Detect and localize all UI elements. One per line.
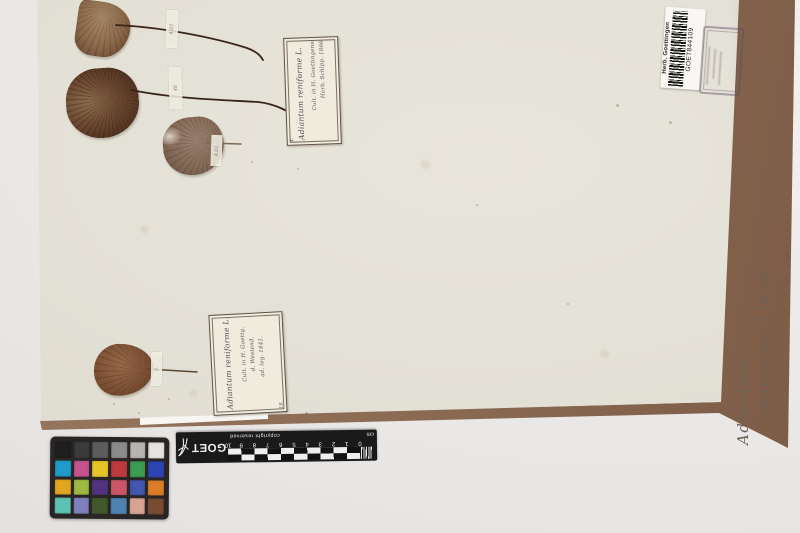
color-patch [55,479,71,495]
scale-ruler: 012345678910 cm copyright reserved GOET [176,430,377,464]
color-patch [73,498,89,514]
stain-speck [168,398,170,400]
label-date: ad. leg. 1841. [258,335,266,376]
ruler-tick-label: 0 [358,438,361,447]
color-patch [148,480,164,496]
color-patch [55,498,71,514]
tape-mark: 3. [153,367,159,372]
ruler-tick-label: 4 [305,439,308,448]
foxing-spot [420,160,430,169]
ruler-tick-label: 3 [319,438,322,447]
specimen-label-bottom: Adiantum reniforme L. Cult. in H. Goettg… [208,311,287,416]
label-locality: Cult. in H. Goettingensi [309,39,317,110]
tape-mark: 4.01 [213,145,219,156]
color-patch [111,480,127,496]
color-patch [74,479,90,495]
stain-speck [138,412,140,414]
ruler-mm-block [360,447,372,459]
ruler-tick-label: 8 [253,439,256,448]
color-checker-grid [55,442,165,515]
folder-annotation-genus: Adiantum [733,215,754,445]
color-patch [130,442,146,458]
ruler-tick-label: 1 [345,438,348,447]
stamp-illegible-line [712,48,716,78]
color-patch [111,461,127,477]
mounting-tape: 3. [151,352,163,386]
color-patch [129,498,145,514]
ruler-copyright: copyright reserved [230,432,280,439]
color-patch [149,442,165,458]
tape-mark: 46 [172,85,178,92]
stain-speck [476,204,478,206]
mounting-tape: 4.01 [210,135,222,166]
color-patch [130,480,146,496]
specimen-label-top: 4. Adiantum reniforme L. Cult. in H. Goe… [283,36,342,146]
stain-speck [251,161,253,163]
folder-annotation: Adiantum reniforme Linné [733,215,793,445]
stain-speck [297,168,299,170]
herbarium-specimen-photo: 4.01 46 4.01 3. 4. Adiantum reniforme L.… [0,0,800,533]
ruler-tick-label: 5 [292,439,295,448]
ruler-tick-label: 6 [279,439,282,448]
label-corner-mark: 18. [278,400,284,408]
color-patch [111,498,127,514]
tape-mark: 4.01 [169,23,175,34]
label-locality-2: d. Westend. [249,336,257,371]
label-locality: Cult. in H. Goettg. [239,326,248,381]
folder-annotation-species: reniforme Linné [754,215,775,417]
mounting-tape: 4.01 [165,10,178,48]
color-patch [111,442,127,458]
color-patch [92,498,108,514]
foxing-spot [600,350,609,358]
ruler-tick-label: 9 [239,439,242,448]
ruler-tick-label: 7 [266,439,269,448]
stain-speck [567,303,569,305]
foxing-spot [140,225,149,233]
stain-speck [305,412,308,415]
color-patch [93,442,109,458]
color-patch [74,442,90,458]
stamp-illegible-line [705,46,710,84]
color-patch [148,499,164,515]
color-patch [92,461,108,477]
color-patch [55,442,71,458]
ruler-brand-block: GOET [178,434,226,462]
stamp-illegible-line [717,51,721,85]
stain-speck [616,104,619,107]
ruler-unit-label: cm [366,431,373,437]
foxing-spot [190,390,198,397]
label-taxon: Adiantum reniforme L. [220,316,234,409]
label-corner-mark: 4. [289,137,295,142]
goet-logo-glyph [178,438,190,458]
color-calibration-target [50,436,170,519]
stain-speck [113,403,115,405]
ruler-tick-label: 2 [332,438,335,447]
mounting-tape: 46 [168,67,182,109]
stain-speck [669,121,672,124]
color-patch [74,460,90,476]
label-taxon: Adiantum reniforme L. [293,46,305,139]
ruler-checker-scale [228,447,360,461]
color-patch [148,461,164,477]
ruler-brand: GOET [191,441,226,453]
color-patch [130,461,146,477]
color-patch [92,479,108,495]
color-patch [55,460,71,476]
ink-stamp [699,26,745,97]
label-collector: Herb. Schlpp. 1866 [318,40,326,98]
